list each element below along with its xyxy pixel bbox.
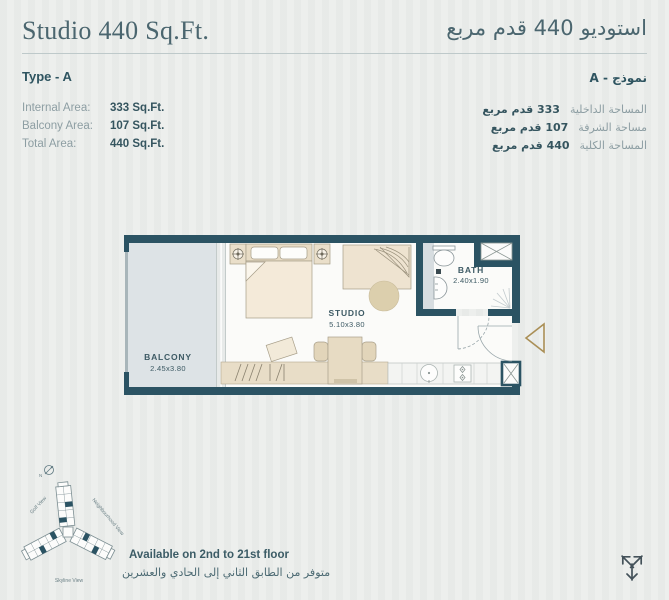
room-label-studio: STUDIO (329, 308, 366, 318)
area-label-ar: المساحة الكلية (580, 137, 647, 155)
area-label-ar: مساحة الشرفة (578, 119, 647, 137)
unit-type-arabic: نموذج - A (589, 71, 647, 85)
building-core (63, 527, 73, 537)
room-dims-balcony: 2.45x3.80 (150, 364, 186, 373)
area-row-internal-ar: المساحة الداخلية333 قدم مربع (482, 101, 647, 119)
bath-wall-strip (423, 243, 434, 309)
bath-wall-bottom-left (416, 309, 456, 316)
compass-north-label: N (39, 473, 42, 478)
building-wing-north (55, 481, 75, 526)
desk-counter (221, 362, 388, 384)
area-table-arabic: المساحة الداخلية333 قدم مربع مساحة الشرف… (482, 101, 647, 155)
kitchen-counter (388, 363, 501, 384)
area-table-english: Internal Area:333 Sq.Ft. Balcony Area:10… (22, 99, 164, 153)
room-label-bath: BATH (458, 265, 484, 275)
building-key-plan: N (12, 458, 137, 590)
tri-wing-logo-icon (608, 542, 656, 594)
availability-text-arabic: متوفر من الطابق الثاني إلى الحادي والعشر… (122, 566, 330, 579)
area-value: 440 Sq.Ft. (110, 138, 164, 150)
entry-marker-icon (526, 324, 544, 352)
area-value-ar: 333 قدم مربع (482, 101, 560, 119)
page-title-arabic: استوديو 440 قدم مربع (446, 16, 647, 40)
bath-wall-bottom-right (488, 309, 520, 316)
stove-icon (454, 365, 471, 382)
area-row-total: Total Area:440 Sq.Ft. (22, 135, 164, 153)
page-title-english: Studio 440 Sq.Ft. (22, 16, 209, 46)
building-wing-southeast (70, 528, 116, 561)
area-label: Internal Area: (22, 99, 110, 117)
bath-wall-left (416, 243, 423, 316)
floorplan-brochure-page: Studio 440 Sq.Ft. استوديو 440 قدم مربع T… (0, 0, 669, 600)
room-dims-studio: 5.10x3.80 (329, 320, 365, 329)
area-label-ar: المساحة الداخلية (570, 101, 647, 119)
area-value: 107 Sq.Ft. (110, 120, 164, 132)
wall-bottom (125, 387, 520, 395)
view-label-south: Skyline View (55, 578, 84, 584)
view-label-east: Neighbourhood View (90, 497, 125, 537)
view-label-west: Golf View (29, 495, 48, 515)
shaft-box (481, 243, 512, 260)
unit-type-english: Type - A (22, 69, 72, 84)
area-row-balcony: Balcony Area:107 Sq.Ft. (22, 117, 164, 135)
unit-floor-plan: BALCONY 2.45x3.80 STUDIO 5.10x3.80 BATH … (118, 229, 548, 399)
wall-top (125, 235, 520, 243)
area-row-balcony-ar: مساحة الشرفة107 قدم مربع (482, 119, 647, 137)
rug (369, 281, 399, 311)
room-dims-bath: 2.40x1.90 (453, 276, 489, 285)
area-row-internal: Internal Area:333 Sq.Ft. (22, 99, 164, 117)
room-label-balcony: BALCONY (144, 352, 192, 362)
compass-icon: N (39, 466, 54, 479)
area-value: 333 Sq.Ft. (110, 102, 164, 114)
utility-box (502, 362, 520, 385)
area-value-ar: 440 قدم مربع (492, 137, 570, 155)
availability-text-english: Available on 2nd to 21st floor (129, 549, 289, 561)
area-value-ar: 107 قدم مربع (491, 119, 569, 137)
area-label: Total Area: (22, 135, 110, 153)
area-row-total-ar: المساحة الكلية440 قدم مربع (482, 137, 647, 155)
header-divider (22, 53, 647, 54)
building-wing-southwest (20, 528, 66, 562)
area-label: Balcony Area: (22, 117, 110, 135)
balcony-balustrade (125, 243, 128, 387)
